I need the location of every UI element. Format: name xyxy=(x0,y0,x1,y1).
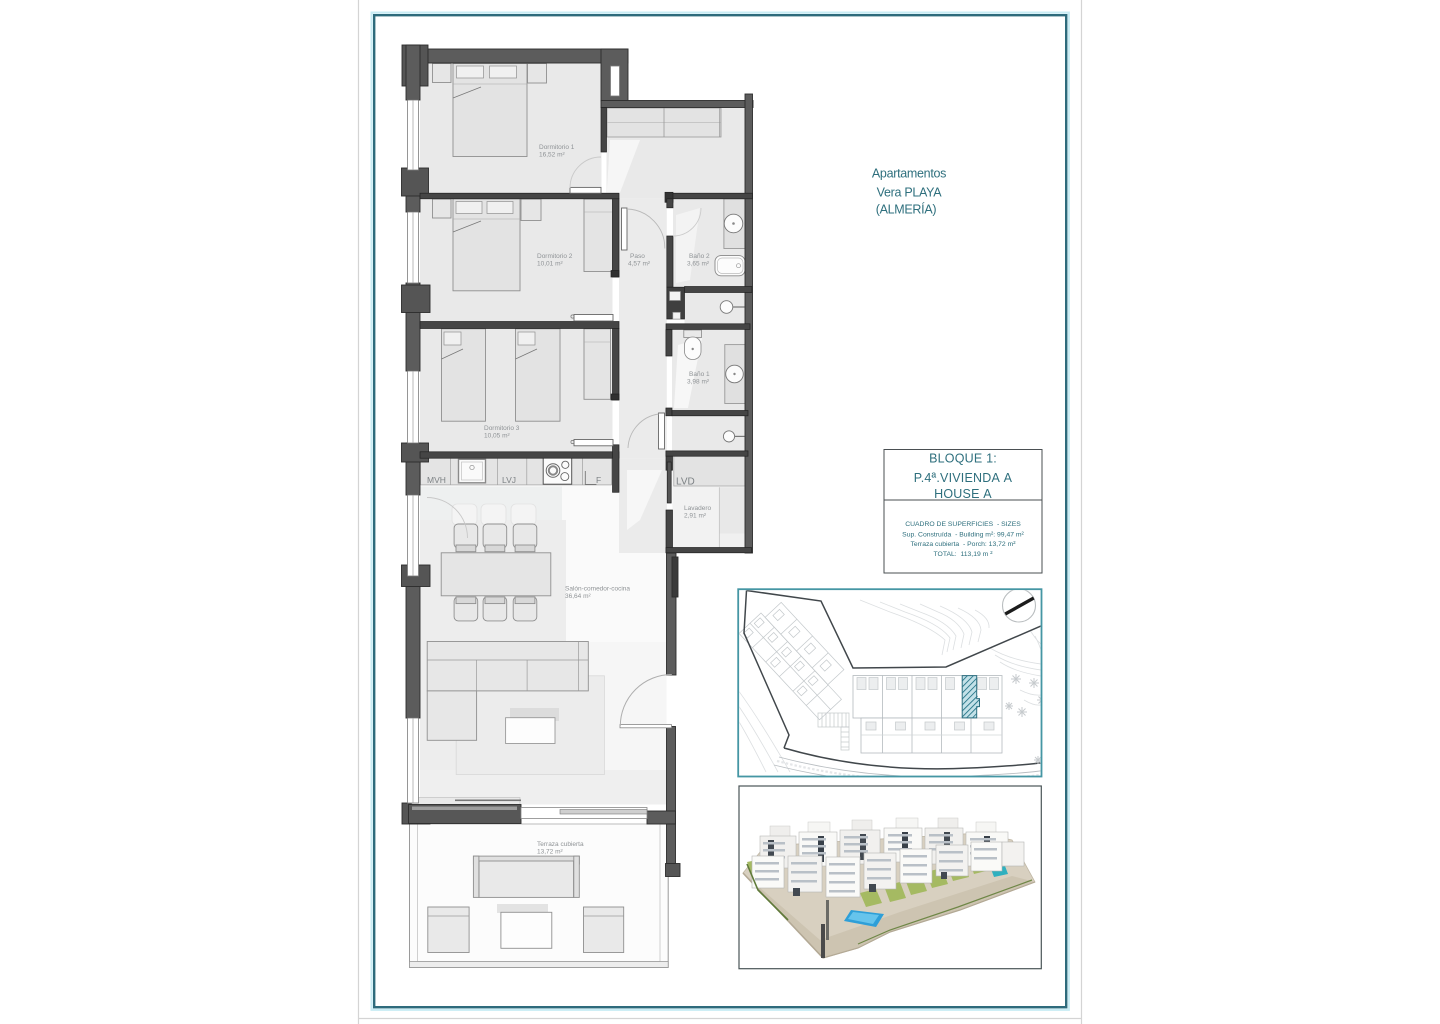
svg-text:Dormitorio 2: Dormitorio 2 xyxy=(537,253,573,260)
svg-text:F: F xyxy=(596,475,601,485)
svg-text:(ALMERÍA): (ALMERÍA) xyxy=(876,202,937,217)
svg-text:P.4ª.VIVIENDA A: P.4ª.VIVIENDA A xyxy=(914,471,1013,485)
svg-text:Salón-comedor-cocina: Salón-comedor-cocina xyxy=(565,586,630,593)
svg-text:LVD: LVD xyxy=(676,477,695,488)
svg-text:3,98 m²: 3,98 m² xyxy=(687,379,710,386)
svg-text:2,91 m²: 2,91 m² xyxy=(684,513,707,520)
svg-text:BLOQUE 1:: BLOQUE 1: xyxy=(929,452,997,466)
svg-text:3,65 m²: 3,65 m² xyxy=(687,261,710,268)
svg-text:36,64 m²: 36,64 m² xyxy=(565,593,591,600)
svg-text:10,01 m²: 10,01 m² xyxy=(537,261,563,268)
svg-text:Lavadero: Lavadero xyxy=(684,505,711,512)
svg-text:16,52 m²: 16,52 m² xyxy=(539,152,565,159)
svg-text:10,05 m²: 10,05 m² xyxy=(484,433,510,440)
svg-text:MVH: MVH xyxy=(427,475,446,485)
svg-text:Dormitorio 1: Dormitorio 1 xyxy=(539,144,575,151)
svg-text:Terraza cubierta: Terraza cubierta xyxy=(537,841,584,848)
svg-text:4,57 m²: 4,57 m² xyxy=(628,261,651,268)
svg-text:Dormitorio 3: Dormitorio 3 xyxy=(484,425,520,432)
svg-text:Apartamentos: Apartamentos xyxy=(872,167,946,181)
svg-text:13,72 m²: 13,72 m² xyxy=(537,849,563,856)
svg-text:Baño 1: Baño 1 xyxy=(689,371,710,378)
svg-text:Vera PLAYA: Vera PLAYA xyxy=(877,186,943,200)
svg-text:Baño 2: Baño 2 xyxy=(689,253,710,260)
svg-text:CUADRO DE SUPERFICIES - SIZES: CUADRO DE SUPERFICIES - SIZES xyxy=(905,521,1021,528)
svg-text:Paso: Paso xyxy=(630,253,645,260)
svg-text:Terraza cubierta - Porch: 13,: Terraza cubierta - Porch: 13,72 m² xyxy=(910,541,1016,548)
svg-text:LVJ: LVJ xyxy=(502,475,516,485)
svg-text:TOTAL: 113,19 m ²: TOTAL: 113,19 m ² xyxy=(934,551,994,558)
svg-text:Sup. Construída - Building m²: Sup. Construída - Building m²: 99,47 m² xyxy=(902,531,1024,538)
svg-text:HOUSE A: HOUSE A xyxy=(934,487,992,501)
